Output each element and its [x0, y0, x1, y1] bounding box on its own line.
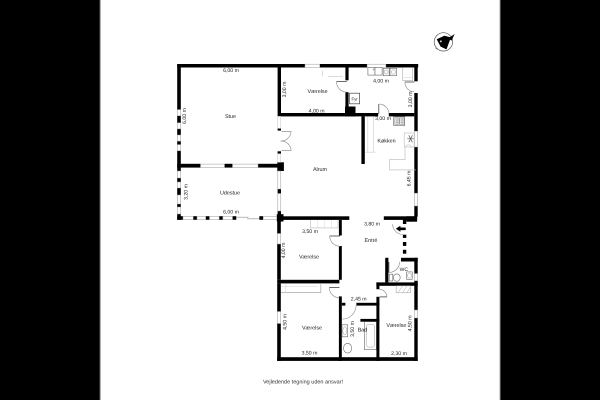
svg-text:Vejledende tegning uden ansvar: Vejledende tegning uden ansvar! — [263, 379, 344, 385]
svg-text:3,20 m: 3,20 m — [183, 184, 189, 200]
svg-text:6,00 m: 6,00 m — [182, 108, 188, 124]
svg-text:WC: WC — [400, 267, 409, 273]
svg-text:Værelse: Værelse — [302, 325, 322, 331]
svg-text:Værelse: Værelse — [308, 89, 328, 95]
svg-text:3,50 m: 3,50 m — [302, 351, 318, 357]
svg-text:3,00 m: 3,00 m — [375, 116, 391, 122]
svg-text:6,00 m: 6,00 m — [223, 68, 239, 74]
svg-text:4,00 m: 4,00 m — [309, 109, 325, 115]
svg-text:6,00 m: 6,00 m — [223, 210, 239, 216]
svg-text:3,00 m: 3,00 m — [408, 91, 414, 107]
svg-text:Stue: Stue — [225, 114, 236, 120]
svg-text:Værelse: Værelse — [386, 323, 406, 329]
svg-text:3,00 m: 3,00 m — [282, 82, 288, 98]
svg-text:2,45 m: 2,45 m — [351, 297, 367, 303]
svg-text:3,80 m: 3,80 m — [364, 222, 380, 228]
svg-text:6,45 m: 6,45 m — [407, 171, 413, 187]
svg-text:4,50 m: 4,50 m — [282, 314, 288, 330]
svg-text:4,00 m: 4,00 m — [373, 79, 389, 85]
svg-text:Værelse: Værelse — [299, 254, 319, 260]
svg-text:Køkken: Køkken — [377, 138, 395, 144]
svg-text:Fyr: Fyr — [351, 96, 358, 101]
svg-text:3,50 m: 3,50 m — [302, 229, 318, 235]
svg-text:2,30 m: 2,30 m — [391, 351, 407, 357]
svg-text:4,50 m: 4,50 m — [408, 315, 414, 331]
svg-text:Bad: Bad — [358, 327, 368, 333]
svg-text:4,00 m: 4,00 m — [281, 243, 287, 259]
svg-text:Alrum: Alrum — [313, 167, 328, 173]
svg-text:Entré: Entré — [365, 238, 378, 244]
svg-text:Udestue: Udestue — [220, 190, 240, 196]
svg-text:3,50 m: 3,50 m — [350, 321, 356, 337]
